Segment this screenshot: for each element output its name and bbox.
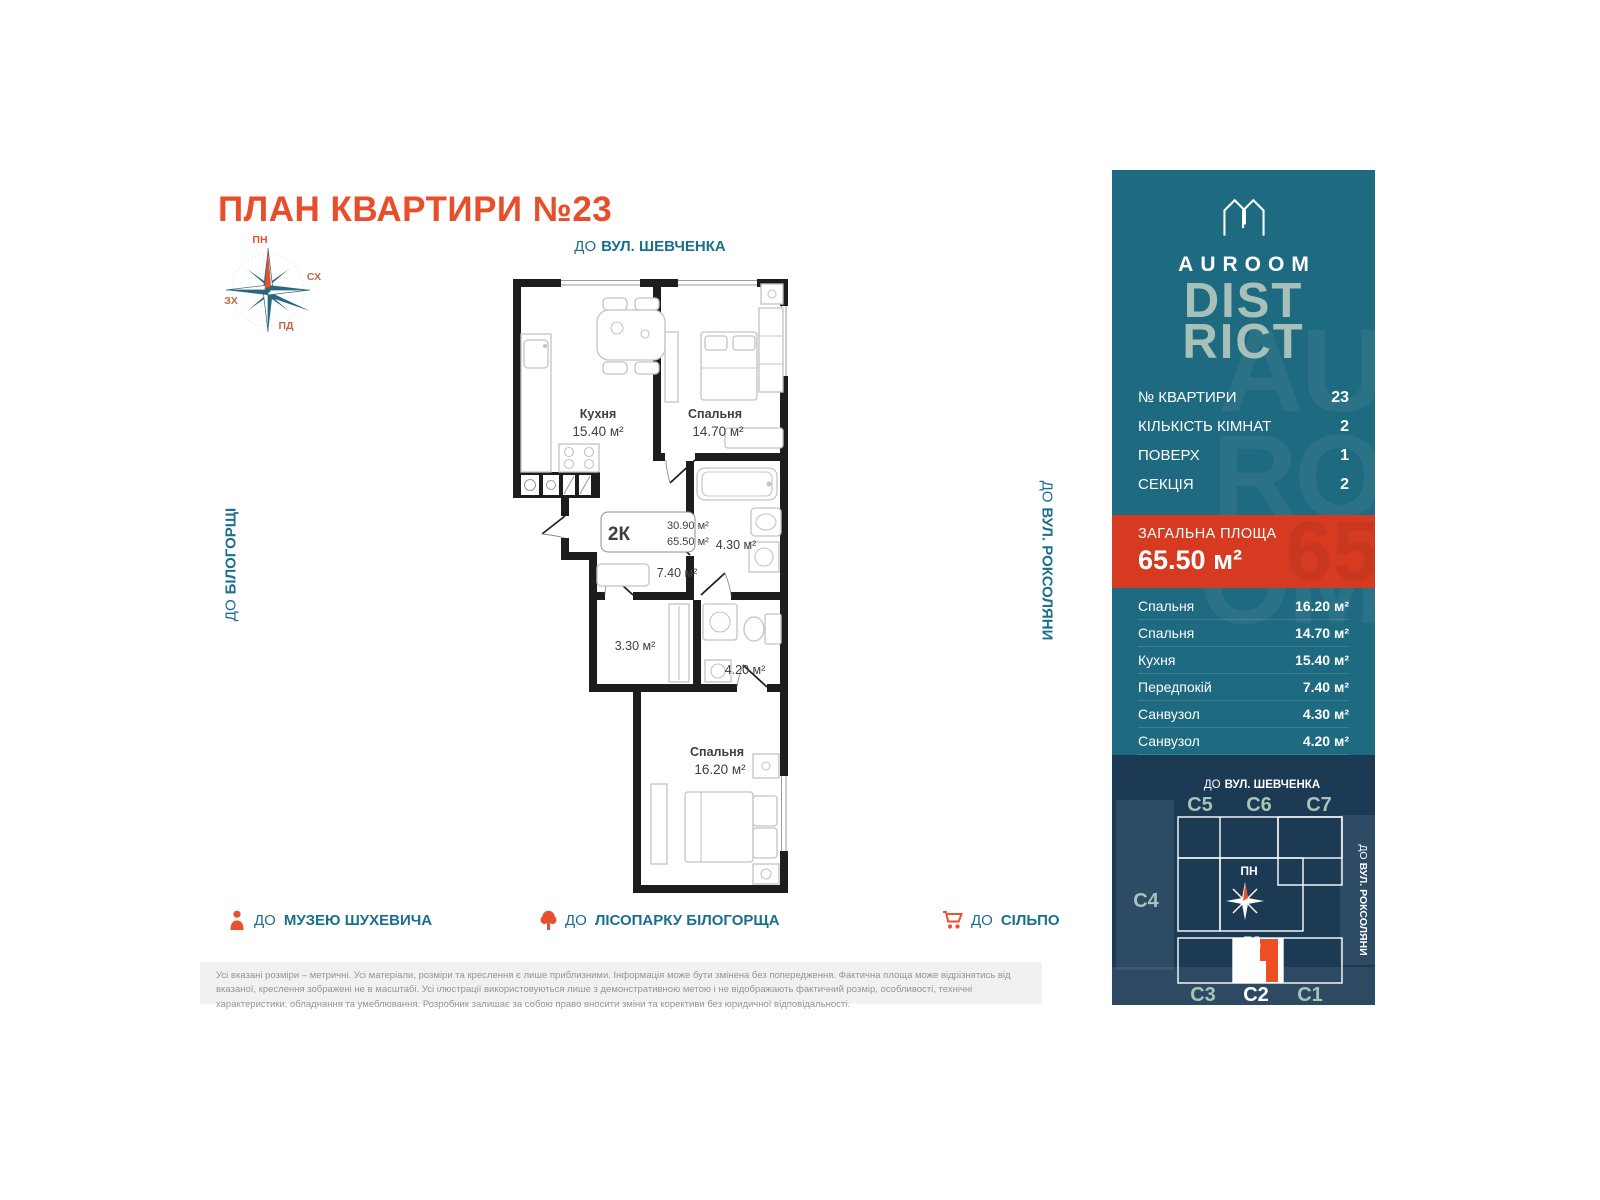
room-value: 16.20 м² xyxy=(1295,598,1349,614)
street-label-roksoliany: ДОВУЛ. РОКСОЛЯНИ xyxy=(1039,441,1056,681)
room-value: 4.20 м² xyxy=(1303,733,1349,749)
bedroom1-area: 14.70 м² xyxy=(692,424,744,439)
room-row: Кухня 15.40 м² xyxy=(1138,647,1349,674)
detail-row-apartment-number: № КВАРТИРИ 23 xyxy=(1138,383,1349,412)
bedroom1-label: Спальня xyxy=(688,407,742,421)
detail-value: 2 xyxy=(1340,476,1349,494)
landmark-prefix: ДО xyxy=(565,912,587,929)
section-label-c2: С2 xyxy=(1243,984,1269,1005)
bath1-area: 4.30 м² xyxy=(716,538,757,552)
pillow-icon xyxy=(733,336,755,350)
landmark-prefix: ДО xyxy=(254,912,276,929)
nightstand-icon xyxy=(761,284,783,304)
toilet-icon xyxy=(765,614,781,644)
detail-row-rooms-count: КІЛЬКІСТЬ КІМНАТ 2 xyxy=(1138,412,1349,441)
room-row: Санвузол 4.20 м² xyxy=(1138,728,1349,755)
chair-icon xyxy=(603,298,627,310)
wardrobe-furniture xyxy=(669,604,689,682)
bedroom2-label: Спальня xyxy=(690,745,744,759)
landmark-name: СІЛЬПО xyxy=(1001,912,1060,929)
apartment-details: № КВАРТИРИ 23 КІЛЬКІСТЬ КІМНАТ 2 ПОВЕРХ … xyxy=(1112,383,1375,499)
section-label-c6: С6 xyxy=(1246,794,1272,816)
disclaimer-text: Усі вказані розміри – метричні. Усі мате… xyxy=(200,962,1042,1012)
detail-label: СЕКЦІЯ xyxy=(1138,476,1194,493)
map-compass-n: ПН xyxy=(1240,864,1257,878)
room-row: Санвузол 4.30 м² xyxy=(1138,701,1349,728)
room-row: Спальня 14.70 м² xyxy=(1138,620,1349,647)
hall-furniture xyxy=(597,564,649,586)
room-label: Кухня xyxy=(1138,652,1175,668)
sidebar-main-panel: AU RO OM AUROOM DIST RICT xyxy=(1112,170,1375,755)
compass-label-e: СХ xyxy=(307,271,321,283)
bathroom1-furniture xyxy=(697,468,781,572)
street-name: БІЛОГОРЩІ xyxy=(223,508,240,595)
landmark-prefix: ДО xyxy=(971,912,993,929)
kitchen-furniture xyxy=(521,298,665,472)
disclaimer-bar: Усі вказані розміри – метричні. Усі мате… xyxy=(200,962,1042,1004)
bathtub-icon xyxy=(697,468,777,500)
chair-icon xyxy=(635,298,659,310)
pillow-icon xyxy=(753,796,777,826)
wardrobe-icon xyxy=(759,308,783,392)
tall-cabinet-icon xyxy=(651,784,667,864)
section-label-c7: С7 xyxy=(1306,794,1332,816)
street-prefix: ДО xyxy=(1039,481,1056,503)
map-street-right: ДОВУЛ. РОКСОЛЯНИ xyxy=(1357,844,1369,955)
detail-value: 23 xyxy=(1331,389,1349,407)
brand-district: DIST RICT xyxy=(1112,281,1375,363)
map-compass-icon xyxy=(1226,882,1264,920)
landmark-museum: ДОМУЗЕЮ ШУХЕВИЧА xyxy=(228,910,432,931)
floor-plan: Кухня 15.40 м² Спальня 14.70 м² Спальня … xyxy=(505,276,795,898)
total-area-block: 65 ЗАГАЛЬНА ПЛОЩА 65.50 м² xyxy=(1112,515,1375,588)
flyer-page: ПЛАН КВАРТИРИ №23 ПН СХ ЗХ ПД ДОВУЛ. ШЕВ… xyxy=(0,0,1600,1200)
kitchen-label: Кухня xyxy=(580,407,617,421)
hall-cabinet-icon xyxy=(597,564,649,586)
landmark-store: ДОСІЛЬПО xyxy=(942,910,1060,930)
room-label: Санвузол xyxy=(1138,733,1200,749)
room-value: 15.40 м² xyxy=(1295,652,1349,668)
rooms-list: Спальня 16.20 м² Спальня 14.70 м² Кухня … xyxy=(1112,588,1375,755)
utility-niche xyxy=(521,475,591,495)
room-row: Спальня 16.20 м² xyxy=(1138,593,1349,620)
pillow-icon xyxy=(753,828,777,858)
pillow-icon xyxy=(705,336,727,350)
room-row: Передпокій 7.40 м² xyxy=(1138,674,1349,701)
bed-icon xyxy=(685,792,753,862)
site-map: ДОВУЛ. ШЕВЧЕНКА С5 С6 С7 xyxy=(1112,755,1375,1005)
landmark-park: ДОЛІСОПАРКУ БІЛОГОРЩА xyxy=(540,910,780,931)
room-value: 14.70 м² xyxy=(1295,625,1349,641)
chair-icon xyxy=(635,362,659,374)
brand-logo: AUROOM DIST RICT xyxy=(1112,170,1375,363)
chair-icon xyxy=(603,362,627,374)
nightstand-icon xyxy=(753,754,779,778)
compass-label-s: ПД xyxy=(278,320,294,332)
map-compass-s: ПД xyxy=(1243,934,1261,948)
street-name: ВУЛ. ШЕВЧЕНКА xyxy=(601,238,726,255)
detail-label: КІЛЬКІСТЬ КІМНАТ xyxy=(1138,418,1271,435)
detail-label: № КВАРТИРИ xyxy=(1138,389,1237,406)
detail-value: 1 xyxy=(1340,447,1349,465)
room-value: 4.30 м² xyxy=(1303,706,1349,722)
person-icon xyxy=(228,910,246,931)
wardrobe-area: 3.30 м² xyxy=(615,639,656,653)
sink-icon xyxy=(703,604,737,640)
landmark-name: ЛІСОПАРКУ БІЛОГОРЩА xyxy=(595,912,780,929)
stove-icon xyxy=(559,444,599,472)
brand-logo-icon xyxy=(1217,196,1271,238)
hall-area: 7.40 м² xyxy=(657,566,698,580)
total-area-value: 65.50 м² xyxy=(1138,545,1349,576)
total-area: 65.50 м² xyxy=(667,536,709,548)
section-label-c1: С1 xyxy=(1297,984,1323,1005)
room-label: Спальня xyxy=(1138,598,1194,614)
street-prefix: ДО xyxy=(574,238,596,255)
compass-rose-icon: ПН СХ ЗХ ПД xyxy=(206,230,338,348)
apartment-type: 2К xyxy=(608,524,631,545)
section-label-c4: С4 xyxy=(1133,890,1159,912)
section-label-c3: С3 xyxy=(1190,984,1216,1005)
detail-value: 2 xyxy=(1340,418,1349,436)
bath2-area: 4.20 м² xyxy=(725,663,766,677)
dresser-icon xyxy=(753,864,779,884)
tall-cabinet-icon xyxy=(665,332,678,402)
total-area-label: ЗАГАЛЬНА ПЛОЩА xyxy=(1138,526,1349,542)
cart-icon xyxy=(942,910,963,930)
room-label: Передпокій xyxy=(1138,679,1212,695)
street-label-bilohorshchi: ДОБІЛОГОРЩІ xyxy=(223,465,240,665)
room-label: Спальня xyxy=(1138,625,1194,641)
tree-icon xyxy=(540,910,557,931)
info-sidebar: AU RO OM AUROOM DIST RICT xyxy=(1112,170,1375,1005)
compass-label-w: ЗХ xyxy=(224,295,238,307)
site-map-panel: ДОВУЛ. ШЕВЧЕНКА С5 С6 С7 xyxy=(1112,755,1375,1005)
map-street-top: ДОВУЛ. ШЕВЧЕНКА xyxy=(1204,779,1320,791)
street-name: ВУЛ. РОКСОЛЯНИ xyxy=(1039,507,1056,640)
landmark-name: МУЗЕЮ ШУХЕВИЧА xyxy=(284,912,432,929)
detail-row-floor: ПОВЕРХ 1 xyxy=(1138,441,1349,470)
dining-table-icon xyxy=(597,310,665,360)
kitchen-area: 15.40 м² xyxy=(572,424,624,439)
room-label: Санвузол xyxy=(1138,706,1200,722)
detail-row-section: СЕКЦІЯ 2 xyxy=(1138,470,1349,499)
apartment-callout: 2К 30.90 м² 65.50 м² xyxy=(601,512,709,552)
street-prefix: ДО xyxy=(223,599,240,621)
street-label-shevchenka: ДОВУЛ. ШЕВЧЕНКА xyxy=(500,238,800,255)
page-title: ПЛАН КВАРТИРИ №23 xyxy=(218,190,612,230)
bedroom2-area: 16.20 м² xyxy=(694,762,746,777)
section-label-c5: С5 xyxy=(1187,794,1213,816)
room-value: 7.40 м² xyxy=(1303,679,1349,695)
living-area: 30.90 м² xyxy=(667,520,709,532)
detail-label: ПОВЕРХ xyxy=(1138,447,1200,464)
compass-label-n: ПН xyxy=(252,234,267,246)
